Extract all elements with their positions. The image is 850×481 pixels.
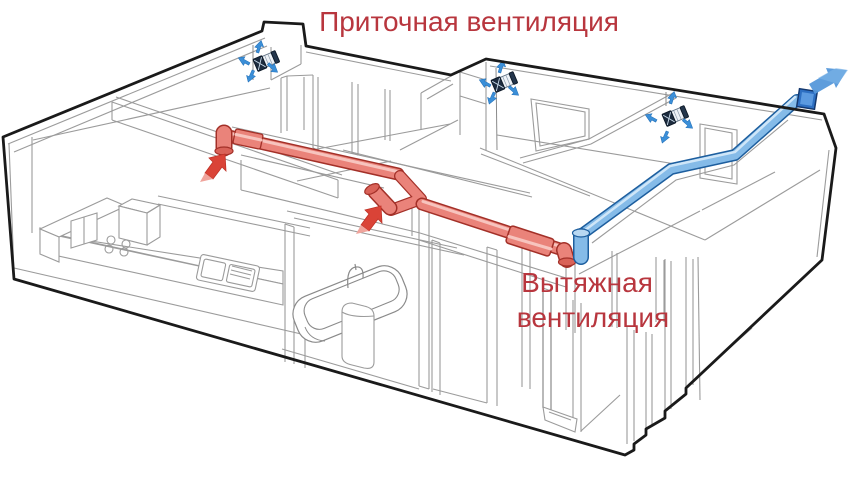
svg-text:Вытяжная: Вытяжная xyxy=(521,267,653,298)
svg-text:Приточная вентиляция: Приточная вентиляция xyxy=(319,6,619,37)
svg-text:вентиляция: вентиляция xyxy=(517,302,669,333)
